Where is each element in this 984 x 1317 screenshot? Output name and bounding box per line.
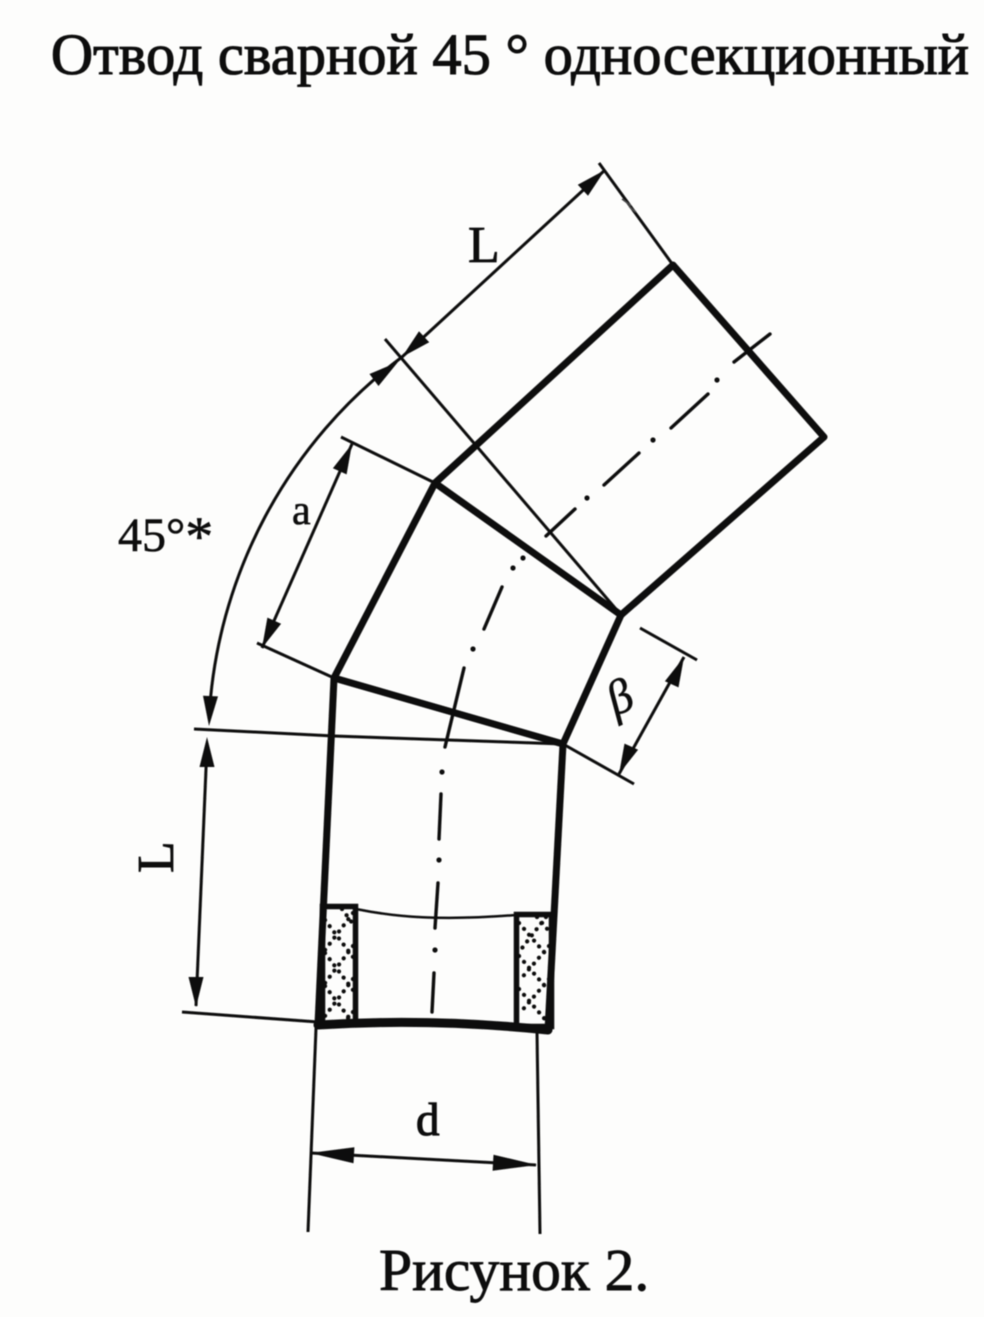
svg-text:d: d bbox=[416, 1094, 440, 1146]
svg-text:L: L bbox=[468, 217, 500, 274]
svg-text:Отвод сварной 45 ° односекцион: Отвод сварной 45 ° односекционный bbox=[51, 22, 969, 87]
svg-text:a: a bbox=[292, 488, 311, 534]
svg-text:45°*: 45°* bbox=[118, 506, 213, 568]
svg-text:Рисунок 2.: Рисунок 2. bbox=[379, 1237, 649, 1303]
svg-text:L: L bbox=[128, 841, 185, 873]
svg-text:β: β bbox=[597, 668, 642, 727]
